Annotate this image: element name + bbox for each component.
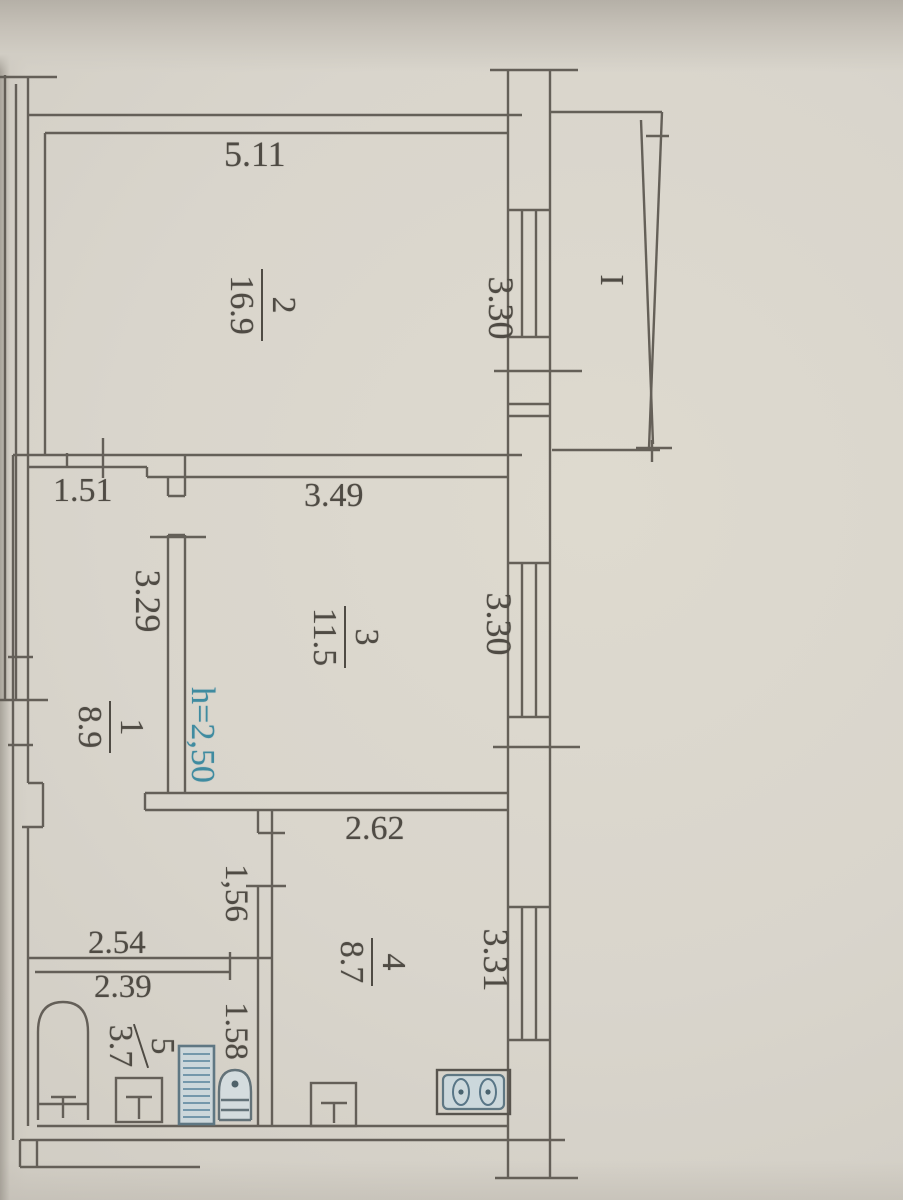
kitchen-sink-icon bbox=[311, 1083, 356, 1126]
dimension-room3-window: 3.30 bbox=[485, 585, 513, 663]
room-number: 4 bbox=[376, 954, 410, 971]
bathtub-icon bbox=[38, 1002, 88, 1120]
room-area: 16.9 bbox=[224, 275, 258, 335]
dimension-hall-width: 2.54 bbox=[88, 927, 146, 960]
hall-kitchen-wall bbox=[246, 810, 286, 1126]
room-label-kitchen: 4 8.7 bbox=[340, 938, 404, 986]
dimension-room2-width: 5.11 bbox=[224, 136, 286, 172]
room-label-living3: 3 11.5 bbox=[313, 606, 377, 668]
toilet-icon bbox=[219, 1070, 251, 1120]
stove-icon bbox=[437, 1070, 510, 1114]
balcony-mark: I bbox=[594, 245, 628, 315]
room-area: 11.5 bbox=[307, 608, 341, 666]
dimension-room2-window: 3.30 bbox=[487, 269, 515, 347]
room-number: 1 bbox=[114, 719, 148, 736]
water-heater-icon bbox=[179, 1046, 214, 1124]
dimension-bathroom-length: 1.58 bbox=[222, 992, 250, 1070]
dimension-bathroom-width: 2.39 bbox=[94, 971, 152, 1004]
room-number: 3 bbox=[349, 629, 383, 646]
room-number: 2 bbox=[266, 297, 300, 314]
room-label-corridor: 1 8.9 bbox=[78, 701, 142, 753]
dimension-kitchen-width: 2.62 bbox=[345, 812, 405, 846]
ceiling-height-note: h=2,50 bbox=[188, 680, 216, 790]
room-label-living2: 2 16.9 bbox=[230, 269, 294, 341]
room-label-bathroom: 5 3.7 bbox=[109, 1023, 173, 1069]
dimension-kitchen-window: 3.31 bbox=[482, 921, 510, 999]
dimension-room3-width: 3.49 bbox=[304, 479, 364, 513]
dimension-hall-length: 1,56 bbox=[222, 854, 250, 932]
room-area: 3.7 bbox=[103, 1025, 137, 1068]
fraction-bar bbox=[371, 938, 373, 986]
fraction-bar bbox=[109, 701, 111, 753]
dimension-corridor-width: 1.51 bbox=[53, 474, 113, 508]
bathroom-sink-icon bbox=[116, 1078, 162, 1122]
fraction-bar bbox=[261, 269, 263, 341]
bottom-wall bbox=[20, 1126, 565, 1167]
room-area: 8.7 bbox=[334, 941, 368, 984]
dimension-corridor-length: 3.29 bbox=[134, 562, 162, 640]
fraction-bar bbox=[344, 606, 346, 668]
room-area: 8.9 bbox=[72, 706, 106, 749]
room-number: 5 bbox=[145, 1038, 179, 1055]
room3-bottom-wall bbox=[145, 793, 508, 810]
floor-plan-sheet: 5.11 1.51 3.49 2.62 2.54 2.39 3.30 3.30 … bbox=[0, 0, 903, 1200]
